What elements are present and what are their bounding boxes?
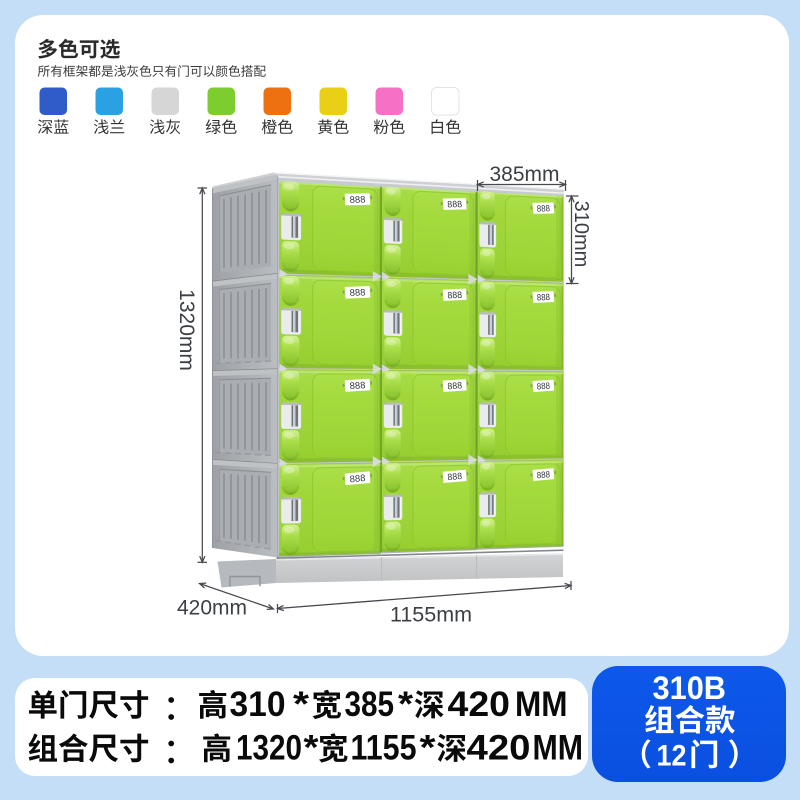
svg-text:*: * (420, 729, 436, 768)
svg-text:420: 420 (448, 685, 511, 724)
svg-text:888: 888 (447, 290, 462, 301)
svg-text:888: 888 (349, 473, 366, 485)
svg-text:1320mm: 1320mm (175, 289, 198, 371)
svg-text:310: 310 (230, 685, 286, 724)
svg-text:888: 888 (536, 381, 550, 392)
svg-text:888: 888 (536, 292, 550, 303)
svg-text:310B: 310B (653, 670, 727, 706)
svg-text:12: 12 (657, 740, 687, 773)
svg-text:MM: MM (533, 729, 584, 768)
svg-text:*: * (398, 685, 413, 724)
svg-text:888: 888 (536, 203, 550, 213)
svg-text:888: 888 (447, 199, 462, 209)
svg-text:888: 888 (447, 380, 462, 391)
svg-text:1155: 1155 (351, 729, 417, 768)
svg-text:385: 385 (345, 685, 395, 724)
svg-text:888: 888 (447, 471, 462, 482)
svg-text:888: 888 (349, 380, 366, 392)
svg-text:*: * (293, 685, 309, 724)
svg-text:*: * (304, 729, 319, 768)
svg-text:888: 888 (349, 195, 366, 206)
svg-text:385mm: 385mm (489, 163, 559, 186)
svg-text:420: 420 (467, 729, 531, 768)
svg-text:1155mm: 1155mm (390, 603, 472, 627)
svg-text:888: 888 (536, 469, 550, 480)
svg-text:888: 888 (349, 287, 366, 299)
svg-text:420mm: 420mm (177, 597, 247, 620)
svg-text:1320: 1320 (236, 729, 302, 768)
svg-text:310mm: 310mm (570, 201, 592, 268)
svg-text:MM: MM (515, 685, 568, 724)
